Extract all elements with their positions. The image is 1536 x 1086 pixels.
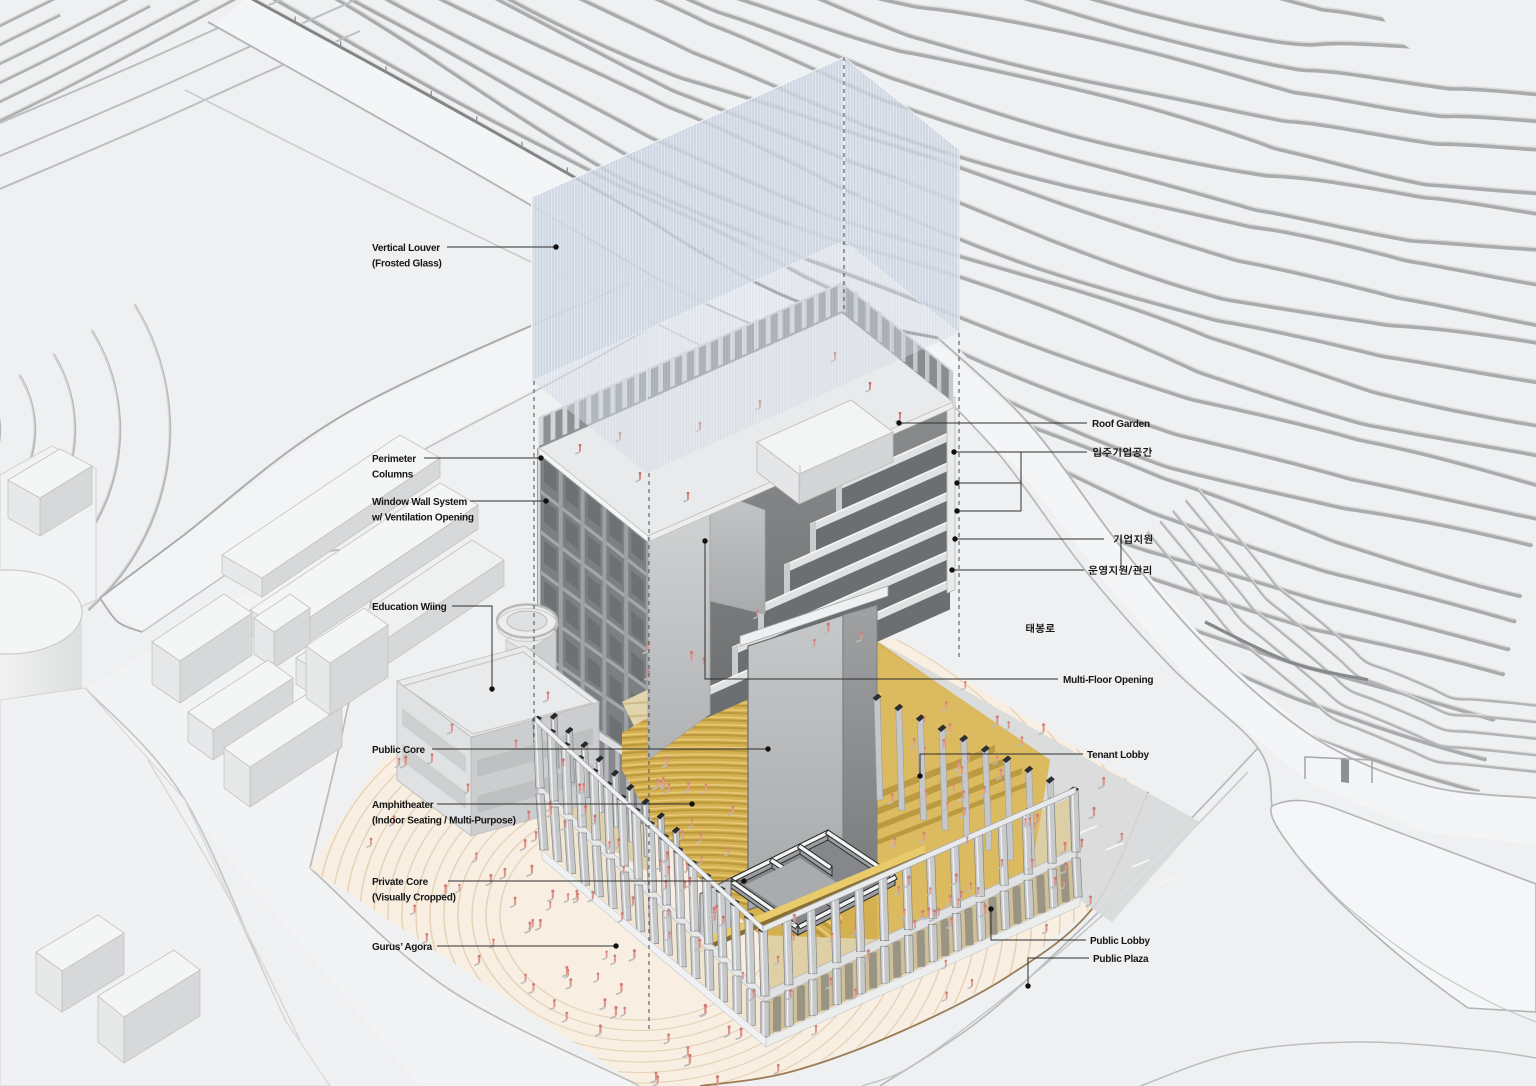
svg-text:Public Lobby: Public Lobby xyxy=(1090,936,1150,947)
svg-text:Public Plaza: Public Plaza xyxy=(1093,954,1149,965)
svg-text:Tenant Lobby: Tenant Lobby xyxy=(1087,750,1149,761)
svg-text:Public Core: Public Core xyxy=(372,745,426,756)
svg-text:Multi-Floor Opening: Multi-Floor Opening xyxy=(1063,675,1153,686)
svg-text:Gurus’ Agora: Gurus’ Agora xyxy=(372,942,433,953)
svg-text:Roof Garden: Roof Garden xyxy=(1092,419,1150,430)
svg-text:Education Wiing: Education Wiing xyxy=(372,602,447,613)
